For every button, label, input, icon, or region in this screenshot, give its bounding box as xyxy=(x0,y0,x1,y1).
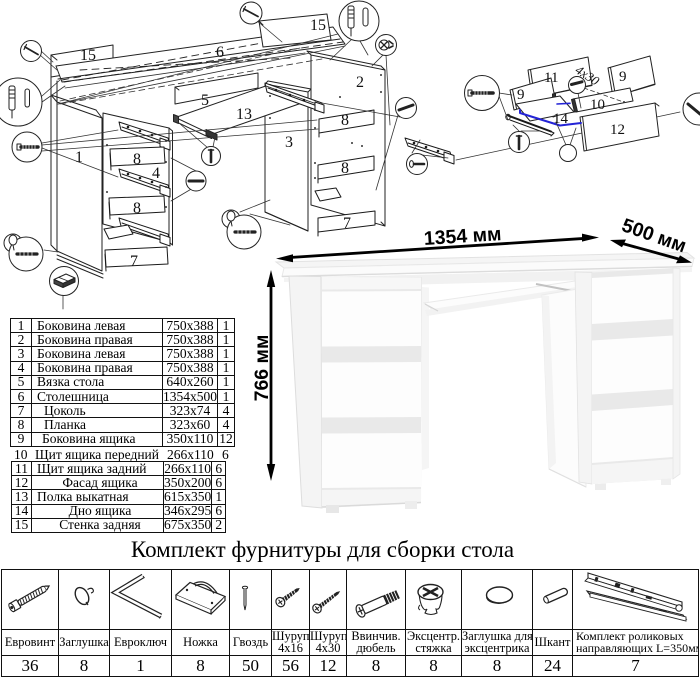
svg-text:766 мм: 766 мм xyxy=(251,335,273,402)
